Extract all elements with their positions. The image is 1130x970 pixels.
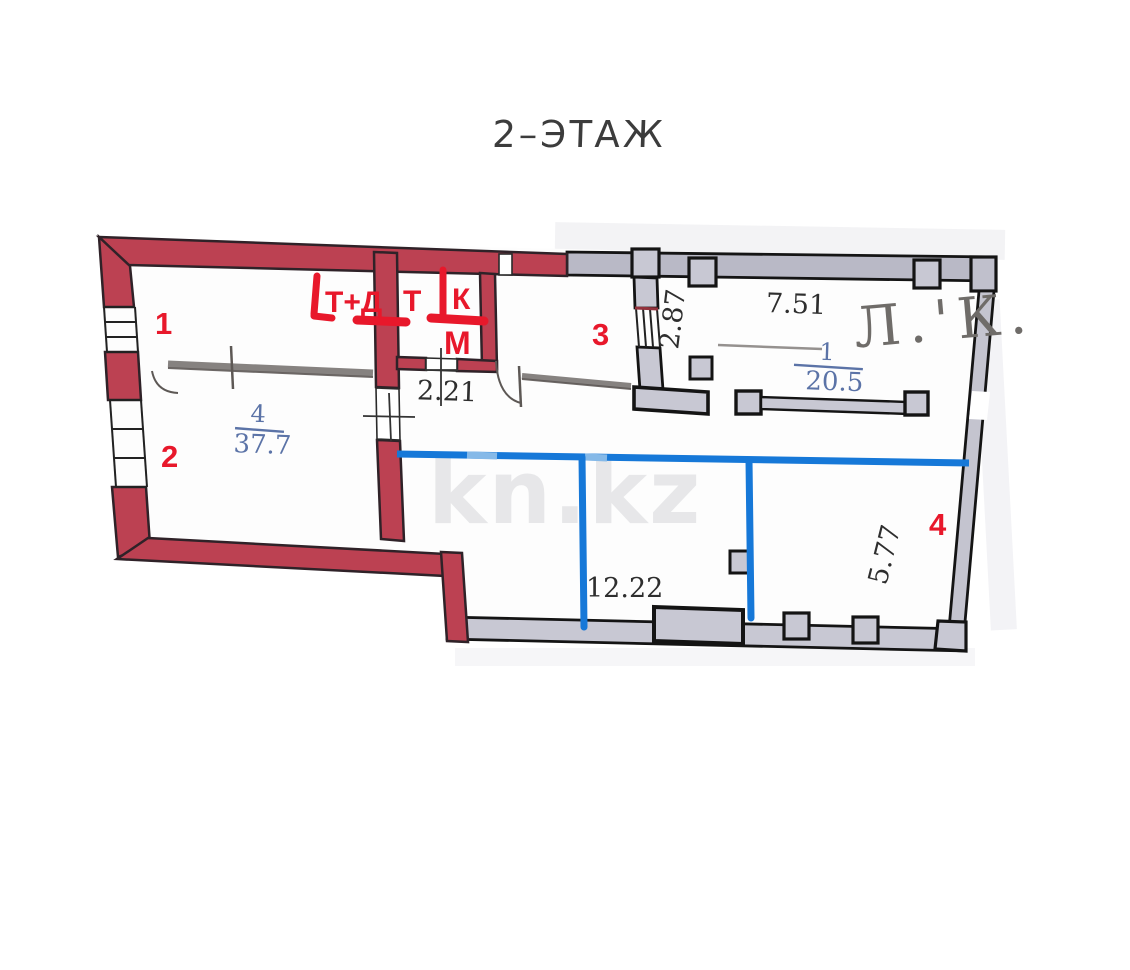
corner-column: [935, 621, 966, 651]
red-line: [357, 320, 406, 322]
column: [736, 391, 761, 414]
mark-4: 4: [929, 507, 947, 542]
stair-wall-upper: [634, 277, 658, 308]
bracket-td: [314, 276, 317, 314]
room4-number: 4: [250, 400, 266, 429]
column: [632, 249, 659, 277]
room4-area: 37.7: [233, 429, 292, 461]
column: [905, 392, 928, 415]
column: [853, 617, 878, 643]
red-line: [431, 318, 484, 321]
vent-shaft: [499, 254, 512, 275]
floor-plan-svg: 2–ЭТАЖ kn.kz: [0, 0, 1130, 970]
mark-2: 2: [161, 439, 178, 474]
column: [784, 613, 809, 639]
floor-plan-scan: 2–ЭТАЖ kn.kz: [0, 0, 1130, 970]
dim-hall: 7.51: [765, 288, 826, 321]
big-column: [654, 607, 743, 644]
mark-1: 1: [155, 306, 172, 341]
stair-bottom-wall: [634, 387, 708, 414]
window-sill: [635, 308, 658, 309]
page-title: 2–ЭТАЖ: [492, 113, 667, 156]
mark-k: К: [452, 283, 471, 316]
room1-number: 1: [819, 338, 835, 367]
blue-vertical-line: [749, 460, 751, 618]
mark-3: 3: [592, 317, 609, 352]
left-wall-pier: [105, 352, 141, 400]
column: [689, 258, 716, 286]
dim-open-space: 12.22: [586, 573, 663, 604]
door-opening: [969, 391, 990, 420]
red-step-wall: [441, 552, 468, 642]
room1-area: 20.5: [805, 366, 864, 398]
column: [690, 357, 712, 379]
mark-m: М: [444, 325, 471, 361]
bathroom-bottom-wall: [397, 357, 426, 370]
stair-wall-lower: [637, 347, 663, 390]
dim-passage: 2.21: [416, 375, 477, 408]
mark-td: Т+Д: [325, 286, 382, 319]
column: [914, 260, 940, 288]
wall-opening: [376, 388, 400, 440]
mark-t: Т: [403, 285, 421, 318]
blue-vertical-line: [582, 457, 584, 627]
